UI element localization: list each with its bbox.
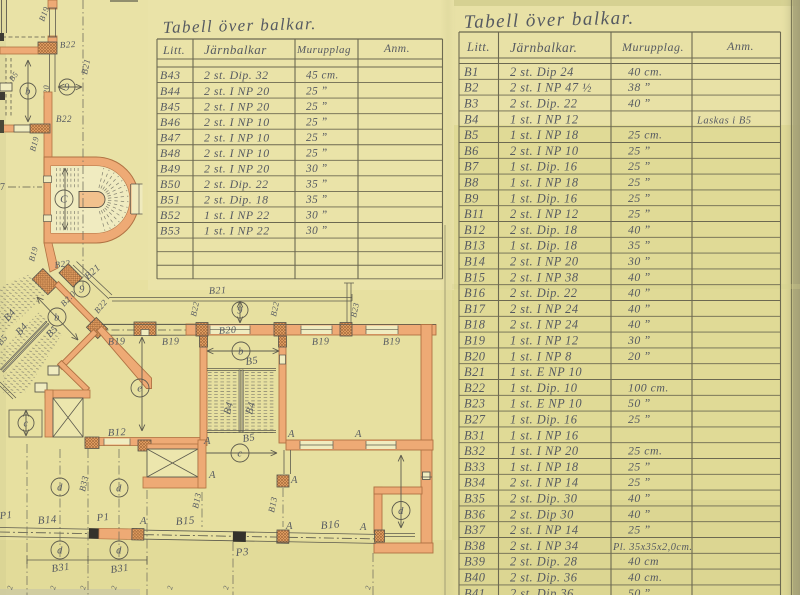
svg-text:25 ˮ: 25 ˮ xyxy=(628,143,651,157)
svg-text:2 st. I NP 24: 2 st. I NP 24 xyxy=(510,318,579,332)
svg-text:B12: B12 xyxy=(464,223,485,237)
svg-text:Tabell över balkar.: Tabell över balkar. xyxy=(163,14,317,37)
svg-text:c: c xyxy=(24,418,29,429)
svg-text:25 ˮ: 25 ˮ xyxy=(628,475,651,489)
svg-text:40 cm: 40 cm xyxy=(628,554,659,568)
svg-text:40 ˮ: 40 ˮ xyxy=(628,491,651,505)
svg-text:B37: B37 xyxy=(464,523,486,537)
svg-text:1 st. Dip. 10: 1 st. Dip. 10 xyxy=(510,381,578,395)
svg-text:1 st. Dip. 18: 1 st. Dip. 18 xyxy=(510,239,578,253)
svg-text:A: A xyxy=(208,470,216,481)
svg-text:c: c xyxy=(237,449,242,460)
svg-text:2 st. Dip. 18: 2 st. Dip. 18 xyxy=(204,193,269,207)
svg-text:Järnbalkar.: Järnbalkar. xyxy=(510,40,577,55)
svg-text:2 st. I NP 24: 2 st. I NP 24 xyxy=(510,302,579,316)
svg-text:A: A xyxy=(290,475,298,486)
svg-text:100 cm.: 100 cm. xyxy=(628,380,669,394)
svg-text:40 ˮ: 40 ˮ xyxy=(628,301,651,315)
svg-text:B6: B6 xyxy=(464,144,479,158)
svg-text:2 st. I NP 20: 2 st. I NP 20 xyxy=(510,255,579,269)
svg-text:Tabell över balkar.: Tabell över balkar. xyxy=(464,8,635,33)
svg-text:d: d xyxy=(116,484,122,495)
svg-text:2 st. I NP 20: 2 st. I NP 20 xyxy=(204,84,270,98)
svg-text:25 ˮ: 25 ˮ xyxy=(306,147,328,159)
svg-text:B4: B4 xyxy=(464,112,479,126)
svg-text:B14: B14 xyxy=(464,255,485,269)
svg-text:e: e xyxy=(137,383,142,395)
svg-text:B49: B49 xyxy=(160,162,181,176)
svg-text:B20: B20 xyxy=(464,349,486,363)
svg-text:25 ˮ: 25 ˮ xyxy=(628,459,651,473)
svg-text:P3: P3 xyxy=(234,546,249,559)
svg-text:d: d xyxy=(57,546,63,557)
svg-text:Murupplag.: Murupplag. xyxy=(621,40,684,54)
svg-text:2 st. Dip. 22: 2 st. Dip. 22 xyxy=(510,286,577,300)
svg-text:B51: B51 xyxy=(160,193,181,207)
svg-text:C: C xyxy=(60,194,68,206)
svg-text:A: A xyxy=(359,522,367,533)
svg-text:2 st. Dip. 28: 2 st. Dip. 28 xyxy=(510,555,578,569)
svg-text:1 st. I NP 20: 1 st. I NP 20 xyxy=(510,444,579,458)
svg-text:2 st. Dip. 18: 2 st. Dip. 18 xyxy=(510,223,578,237)
svg-text:9: 9 xyxy=(79,285,85,296)
svg-text:2 st. I NP 20: 2 st. I NP 20 xyxy=(204,162,270,176)
svg-text:d: d xyxy=(116,546,122,557)
svg-text:B35: B35 xyxy=(464,492,485,506)
svg-text:25 ˮ: 25 ˮ xyxy=(628,412,651,426)
svg-text:20 ˮ: 20 ˮ xyxy=(628,349,651,363)
svg-text:B33: B33 xyxy=(464,460,485,474)
svg-text:B53: B53 xyxy=(160,224,181,238)
svg-text:B8: B8 xyxy=(464,176,479,190)
svg-text:40 ˮ: 40 ˮ xyxy=(628,270,651,284)
svg-text:A: A xyxy=(203,436,211,447)
svg-text:B19: B19 xyxy=(464,334,485,348)
svg-text:B46: B46 xyxy=(160,115,181,129)
svg-text:B15: B15 xyxy=(175,514,195,528)
svg-text:A: A xyxy=(354,429,362,440)
svg-text:Pl. 35x35x2,0cm.: Pl. 35x35x2,0cm. xyxy=(612,542,693,553)
svg-text:B17: B17 xyxy=(464,302,486,316)
svg-text:1 st. I NP 18: 1 st. I NP 18 xyxy=(510,460,579,474)
svg-text:50 ˮ: 50 ˮ xyxy=(628,396,651,410)
svg-text:B9: B9 xyxy=(464,191,479,205)
svg-text:B40: B40 xyxy=(464,571,486,585)
svg-text:25 ˮ: 25 ˮ xyxy=(628,159,651,173)
svg-text:1 st. I NP 12: 1 st. I NP 12 xyxy=(510,334,579,348)
svg-text:25 ˮ: 25 ˮ xyxy=(628,191,651,205)
svg-text:2 st. I NP 20: 2 st. I NP 20 xyxy=(204,99,270,113)
svg-text:B19: B19 xyxy=(312,336,330,348)
svg-text:1 st. Dip. 16: 1 st. Dip. 16 xyxy=(510,160,578,174)
svg-text:Murupplag: Murupplag xyxy=(296,44,351,56)
svg-text:2 st. I NP 12: 2 st. I NP 12 xyxy=(510,207,579,221)
svg-text:1 st. I NP 22: 1 st. I NP 22 xyxy=(204,208,270,222)
svg-text:B15: B15 xyxy=(464,270,485,284)
svg-text:2 st. I NP 14: 2 st. I NP 14 xyxy=(510,523,579,537)
svg-text:B47: B47 xyxy=(160,130,181,144)
svg-text:B23: B23 xyxy=(464,397,485,411)
svg-text:2 st. I NP 10: 2 st. I NP 10 xyxy=(510,144,579,158)
svg-text:9: 9 xyxy=(237,306,243,317)
svg-text:B32: B32 xyxy=(464,444,485,458)
svg-text:B16: B16 xyxy=(320,518,340,532)
svg-text:B27: B27 xyxy=(464,413,486,427)
svg-text:2 st. I NP 10: 2 st. I NP 10 xyxy=(204,130,270,144)
svg-text:2 st. I NP 14: 2 st. I NP 14 xyxy=(510,476,579,490)
svg-text:Järnbalkar: Järnbalkar xyxy=(204,42,267,57)
svg-text:1 st. I NP 12: 1 st. I NP 12 xyxy=(510,112,579,126)
svg-text:2 st. I NP 47 ½: 2 st. I NP 47 ½ xyxy=(510,81,592,95)
svg-text:Anm.: Anm. xyxy=(726,39,754,53)
svg-text:B22: B22 xyxy=(59,39,76,50)
svg-text:B5: B5 xyxy=(242,432,256,445)
svg-text:25 ˮ: 25 ˮ xyxy=(306,101,328,113)
svg-text:25 ˮ: 25 ˮ xyxy=(628,207,651,221)
svg-text:2 st. Dip. 30: 2 st. Dip. 30 xyxy=(510,492,578,506)
svg-text:2 st. Dip 30: 2 st. Dip 30 xyxy=(510,507,574,521)
svg-text:B20: B20 xyxy=(218,325,236,337)
svg-text:25 ˮ: 25 ˮ xyxy=(628,175,651,189)
svg-text:B18: B18 xyxy=(464,318,486,332)
svg-text:35 ˮ: 35 ˮ xyxy=(305,194,328,206)
svg-text:B44: B44 xyxy=(160,84,181,98)
svg-text:1 st. E NP 10: 1 st. E NP 10 xyxy=(510,365,582,379)
svg-text:B16: B16 xyxy=(464,286,486,300)
svg-text:1 st. I NP 22: 1 st. I NP 22 xyxy=(204,224,270,238)
svg-text:P1: P1 xyxy=(95,512,110,524)
svg-text:45 cm.: 45 cm. xyxy=(306,70,339,82)
svg-text:40 ˮ: 40 ˮ xyxy=(628,96,651,110)
svg-text:35 ˮ: 35 ˮ xyxy=(627,238,651,252)
svg-text:1 st. I NP 16: 1 st. I NP 16 xyxy=(510,428,579,442)
svg-text:B48: B48 xyxy=(160,146,181,160)
svg-text:1 st. E NP 10: 1 st. E NP 10 xyxy=(510,397,582,411)
svg-text:B14: B14 xyxy=(37,513,57,527)
svg-text:25 ˮ: 25 ˮ xyxy=(628,523,651,537)
svg-text:25 ˮ: 25 ˮ xyxy=(306,132,328,144)
svg-text:40 ˮ: 40 ˮ xyxy=(628,507,651,521)
svg-text:d: d xyxy=(57,483,63,494)
svg-text:B31: B31 xyxy=(464,428,485,442)
svg-text:Litt.: Litt. xyxy=(162,43,185,57)
svg-text:1 st. Dip. 16: 1 st. Dip. 16 xyxy=(510,191,578,205)
svg-text:30 ˮ: 30 ˮ xyxy=(305,225,328,237)
svg-text:A: A xyxy=(287,429,295,440)
svg-text:B41: B41 xyxy=(464,586,485,595)
svg-text:2 st. I NP 10: 2 st. I NP 10 xyxy=(204,146,270,160)
svg-text:Litt.: Litt. xyxy=(466,40,490,54)
svg-text:B21: B21 xyxy=(464,365,485,379)
svg-text:2 st. Dip. 22: 2 st. Dip. 22 xyxy=(510,97,577,111)
svg-text:B19: B19 xyxy=(383,336,401,348)
svg-text:2 st. Dip 24: 2 st. Dip 24 xyxy=(510,65,574,79)
svg-text:B5: B5 xyxy=(245,355,259,368)
svg-text:2 st. Dip 36: 2 st. Dip 36 xyxy=(510,586,574,595)
svg-text:B34: B34 xyxy=(464,476,485,490)
svg-text:d: d xyxy=(398,506,404,517)
svg-text:B38: B38 xyxy=(464,539,486,553)
svg-text:Anm.: Anm. xyxy=(383,43,410,55)
svg-text:40 cm.: 40 cm. xyxy=(628,570,662,584)
svg-text:2 st. I NP 38: 2 st. I NP 38 xyxy=(510,270,579,284)
svg-text:A: A xyxy=(139,516,147,527)
svg-text:B1: B1 xyxy=(464,65,479,79)
svg-text:B22: B22 xyxy=(464,381,485,395)
svg-text:B21: B21 xyxy=(209,285,227,297)
svg-text:B5: B5 xyxy=(464,128,479,142)
svg-text:B13: B13 xyxy=(464,239,485,253)
svg-text:B19: B19 xyxy=(162,336,180,348)
svg-text:b: b xyxy=(25,87,31,98)
svg-text:B45: B45 xyxy=(160,99,181,113)
svg-text:25 ˮ: 25 ˮ xyxy=(306,116,328,128)
svg-text:30 ˮ: 30 ˮ xyxy=(305,163,328,175)
svg-text:38 ˮ: 38 ˮ xyxy=(627,80,651,94)
svg-text:B3: B3 xyxy=(464,97,479,111)
svg-text:35 ˮ: 35 ˮ xyxy=(305,179,328,191)
svg-text:B22: B22 xyxy=(56,114,72,124)
svg-text:P1: P1 xyxy=(0,510,13,522)
svg-text:B39: B39 xyxy=(464,555,485,569)
svg-text:40 ˮ: 40 ˮ xyxy=(628,317,651,331)
svg-text:B11: B11 xyxy=(464,207,485,221)
svg-text:25 ˮ: 25 ˮ xyxy=(306,85,328,97)
svg-text:B19: B19 xyxy=(108,336,126,348)
svg-text:30 ˮ: 30 ˮ xyxy=(627,333,651,347)
svg-text:30 ˮ: 30 ˮ xyxy=(627,254,651,268)
svg-text:B52: B52 xyxy=(160,208,181,222)
svg-text:2 st. I NP 10: 2 st. I NP 10 xyxy=(204,115,270,129)
svg-text:2 st. Dip. 36: 2 st. Dip. 36 xyxy=(510,571,578,585)
svg-text:40 cm.: 40 cm. xyxy=(628,64,662,78)
svg-text:B7: B7 xyxy=(464,160,479,174)
svg-text:B2: B2 xyxy=(464,81,479,95)
svg-text:2 st. Dip. 32: 2 st. Dip. 32 xyxy=(204,68,269,82)
svg-text:1 st. I NP 8: 1 st. I NP 8 xyxy=(510,349,572,363)
svg-text:40 ˮ: 40 ˮ xyxy=(628,286,651,300)
svg-text:Laskas i B5: Laskas i B5 xyxy=(696,115,752,126)
svg-text:50 ˮ: 50 ˮ xyxy=(628,586,651,595)
svg-text:7: 7 xyxy=(0,182,6,193)
svg-text:b: b xyxy=(54,313,60,324)
svg-text:25 cm.: 25 cm. xyxy=(628,128,662,142)
svg-text:2 st. Dip. 22: 2 st. Dip. 22 xyxy=(204,177,269,191)
svg-text:B50: B50 xyxy=(160,177,181,191)
svg-text:B43: B43 xyxy=(160,68,181,82)
svg-text:9: 9 xyxy=(64,83,70,94)
svg-text:1 st. I NP 18: 1 st. I NP 18 xyxy=(510,128,579,142)
svg-text:1 st. Dip. 16: 1 st. Dip. 16 xyxy=(510,413,578,427)
svg-text:30 ˮ: 30 ˮ xyxy=(305,210,328,222)
svg-text:40 ˮ: 40 ˮ xyxy=(628,222,651,236)
svg-text:1 st. I NP 18: 1 st. I NP 18 xyxy=(510,176,579,190)
svg-text:B36: B36 xyxy=(464,507,486,521)
svg-text:2 st. I NP 34: 2 st. I NP 34 xyxy=(510,539,579,553)
svg-text:b: b xyxy=(238,347,244,358)
svg-text:25 cm.: 25 cm. xyxy=(628,444,662,458)
